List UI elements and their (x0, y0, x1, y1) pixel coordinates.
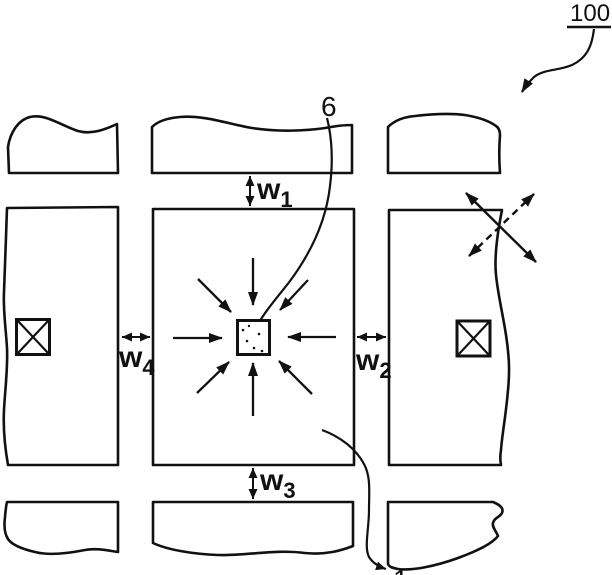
label-w1-base: w (256, 173, 281, 206)
label-w4: w4 (118, 341, 155, 380)
pattern-bottom-left (4, 502, 118, 554)
pattern-left (4, 207, 118, 465)
label-w4-base: w (118, 341, 143, 374)
pattern-top-left (8, 116, 118, 173)
patent-figure: 100 6 1 w1 w2 w3 w4 (0, 0, 612, 575)
leader-100 (522, 29, 594, 92)
label-w3: w3 (259, 464, 296, 503)
label-100: 100 (567, 0, 611, 27)
pattern-bottom-center (153, 502, 353, 555)
label-w1: w1 (256, 173, 293, 212)
label-w3-sub: 3 (283, 478, 295, 503)
label-100-text: 100 (570, 0, 610, 27)
label-w2-base: w (355, 344, 380, 377)
label-w1-sub: 1 (280, 187, 292, 212)
label-1: 1 (393, 564, 409, 575)
label-w2-sub: 2 (379, 358, 391, 383)
label-w4-sub: 4 (142, 355, 155, 380)
pattern-top-right (388, 114, 500, 173)
pattern-bottom-right (388, 502, 503, 569)
label-6: 6 (321, 91, 337, 122)
label-w2: w2 (355, 344, 392, 383)
pattern-top-center (152, 117, 352, 173)
label-w3-base: w (259, 464, 284, 497)
